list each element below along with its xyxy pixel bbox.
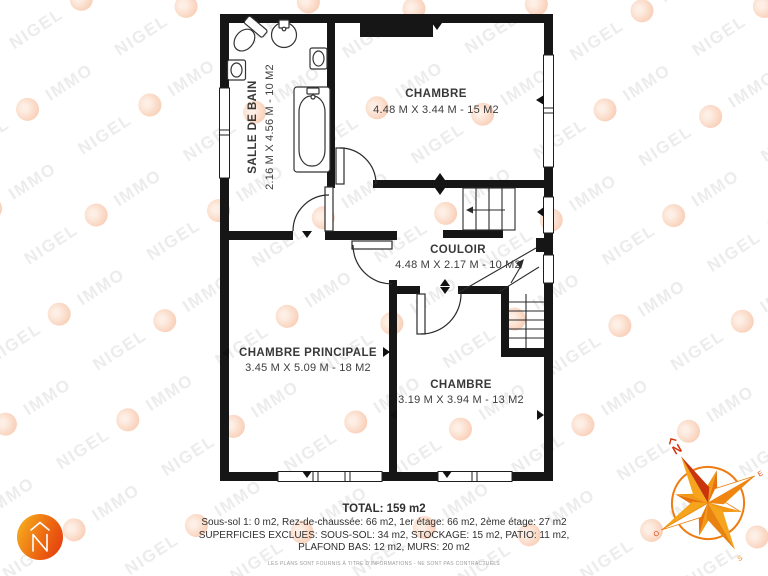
window-hallway (544, 197, 554, 233)
compass-north-label: N (670, 441, 685, 457)
door-bedroom-top (336, 148, 376, 184)
compass-main-points (648, 438, 768, 570)
builtin-closet (360, 23, 433, 37)
staircase-upper (463, 188, 515, 230)
compass-icon: N E S O (648, 438, 768, 570)
compass-south-label: S (736, 554, 744, 563)
room-dims-hallway: 4.48 M X 2.17 M - 10 M2 (395, 259, 521, 271)
room-label-bedroom-top: CHAMBRE (405, 88, 467, 100)
room-dims-master-bedroom: 3.45 M X 5.09 M - 18 M2 (245, 362, 371, 374)
room-label-master-bedroom: CHAMBRE PRINCIPALE (239, 347, 377, 359)
sink-icon (272, 20, 297, 48)
room-label-hallway: COULOIR (430, 244, 486, 256)
wall-cabinet-right-icon (310, 48, 327, 69)
door-bedroom-bottom (417, 294, 461, 334)
wall-cabinet-left-icon (228, 60, 246, 80)
door-master-bedroom (352, 241, 392, 284)
room-dims-bedroom-bottom: 3.19 M X 3.94 M - 13 M2 (398, 394, 524, 406)
floorplan-page: NIGELIMMONIGELIMMONIGELIMMONIGELIMMONIGE… (0, 0, 768, 576)
stairs-up-arrow-icon (466, 207, 473, 214)
window-master-bedroom (278, 472, 382, 482)
room-label-bathroom: SALLE DE BAIN (247, 80, 259, 173)
brand-logo-icon (17, 514, 63, 560)
window-stairs (544, 255, 554, 283)
bathroom-fixtures (228, 15, 331, 172)
room-dims-bathroom: 2.16 M X 4.56 M - 10 M2 (264, 64, 276, 190)
doors-layer (293, 148, 461, 334)
room-dims-bedroom-top: 4.48 M X 3.44 M - 15 M2 (373, 104, 499, 116)
door-bathroom (293, 187, 333, 231)
bathtub-icon (294, 87, 330, 172)
compass-east-label: E (757, 470, 765, 479)
compass-west-label: O (653, 530, 662, 539)
room-label-bedroom-bottom: CHAMBRE (430, 379, 492, 391)
